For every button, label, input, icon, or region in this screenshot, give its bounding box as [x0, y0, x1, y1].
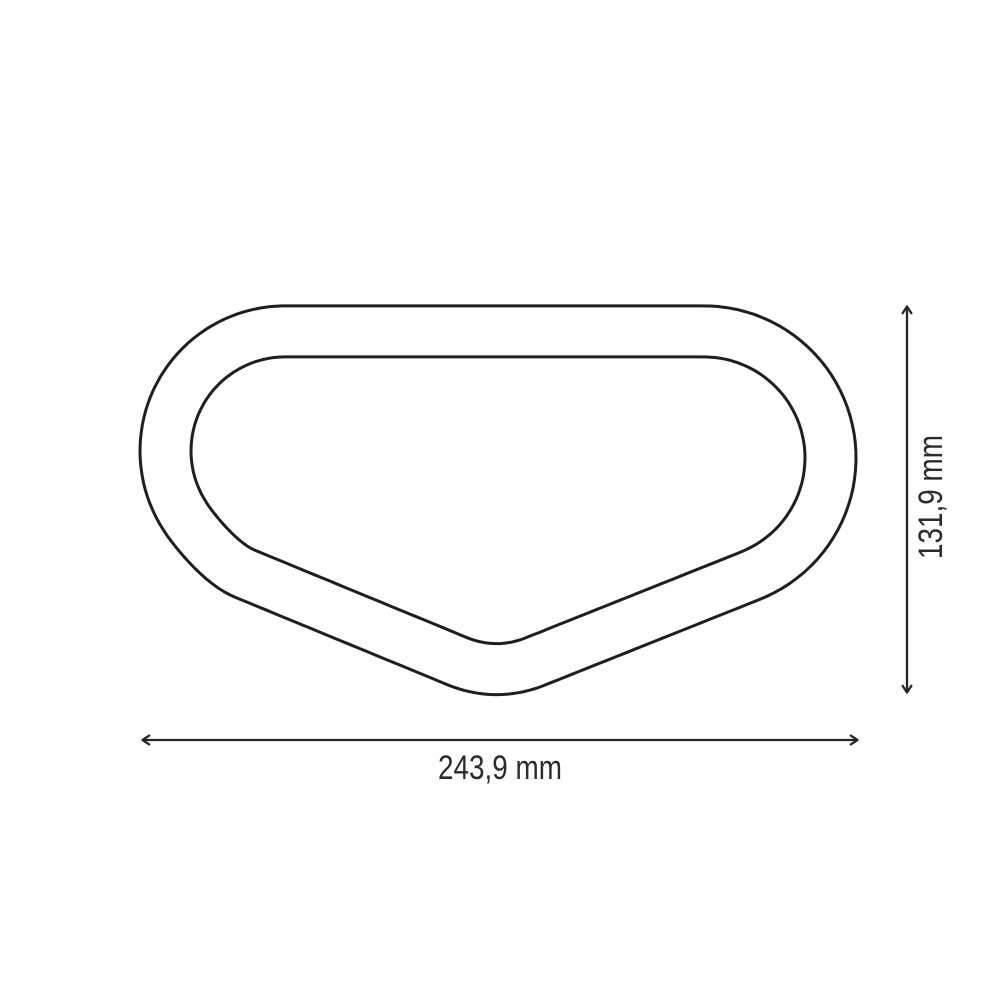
svg-text:131,9 mm: 131,9 mm	[912, 435, 950, 559]
svg-text:243,9 mm: 243,9 mm	[438, 749, 562, 787]
